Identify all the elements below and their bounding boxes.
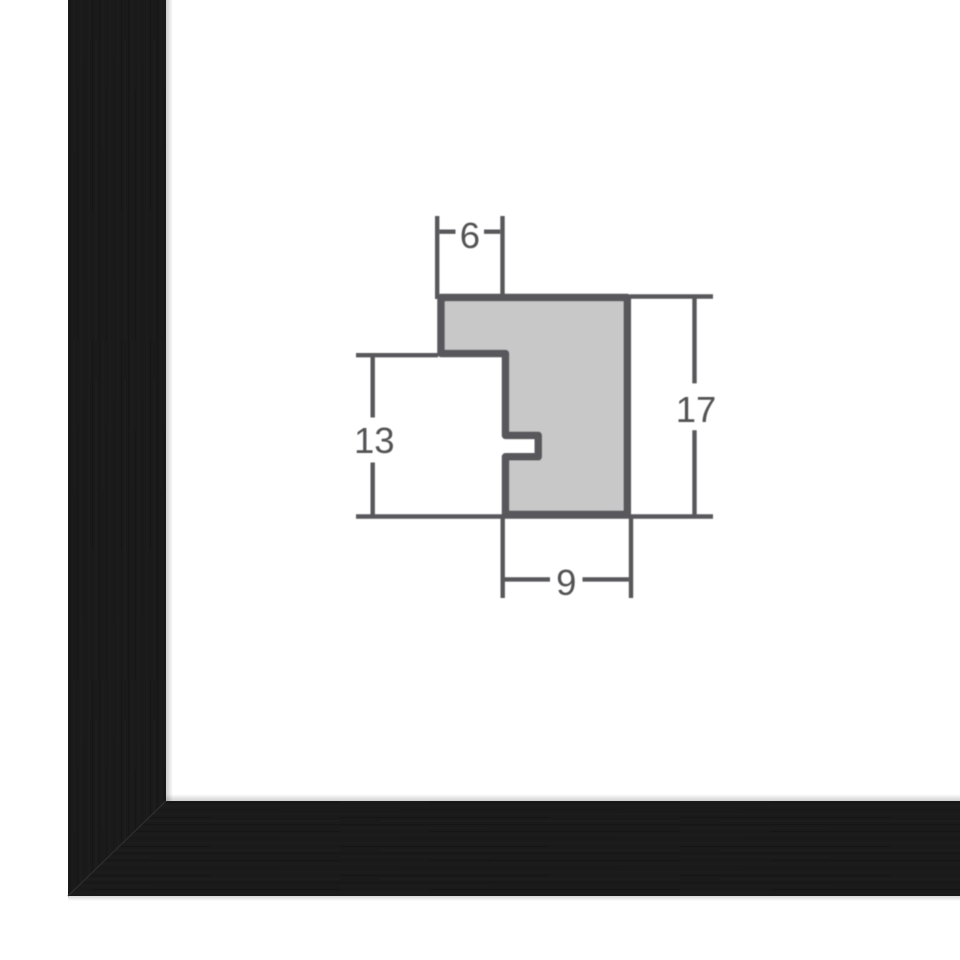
svg-text:13: 13	[354, 420, 395, 461]
svg-text:17: 17	[676, 389, 717, 430]
svg-text:9: 9	[556, 562, 576, 603]
svg-text:6: 6	[460, 215, 480, 256]
